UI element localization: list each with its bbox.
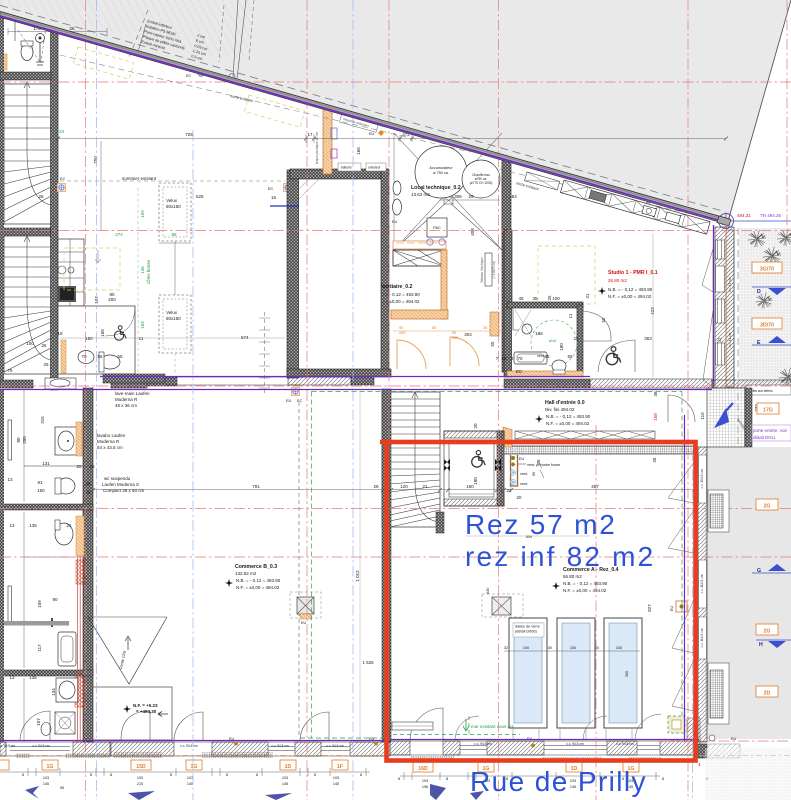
svg-text:30: 30 — [548, 646, 552, 650]
svg-text:Velux: Velux — [166, 198, 178, 203]
svg-text:117: 117 — [37, 644, 42, 652]
svg-text:ø140: ø140 — [549, 339, 556, 343]
svg-text:100: 100 — [552, 296, 560, 301]
svg-text:c.c. 94.5 cm: c.c. 94.5 cm — [616, 742, 634, 746]
svg-text:H: H — [759, 642, 763, 648]
svg-text:158: 158 — [653, 413, 658, 421]
svg-text:Tableau électrique: Tableau électrique — [480, 257, 484, 283]
svg-text:EC: EC — [297, 399, 303, 403]
svg-text:8: 8 — [170, 773, 172, 777]
svg-text:ø 750 ca.: ø 750 ca. — [433, 171, 449, 175]
svg-text:EU: EU — [392, 220, 398, 224]
svg-text:145: 145 — [43, 782, 49, 786]
svg-text:N.F. = ±0,00 = 494,02: N.F. = ±0,00 = 494,02 — [608, 294, 652, 299]
svg-text:25: 25 — [89, 464, 95, 469]
svg-text:81: 81 — [37, 480, 43, 485]
svg-text:300: 300 — [625, 671, 629, 677]
svg-text:625: 625 — [196, 194, 204, 199]
svg-text:N.B. = - 0,12 = 493.90: N.B. = - 0,12 = 493.90 — [563, 581, 608, 586]
svg-text:vent. primaire fosse: vent. primaire fosse — [527, 463, 560, 467]
svg-text:26: 26 — [373, 484, 379, 489]
svg-text:1 626: 1 626 — [362, 660, 374, 665]
svg-text:EU: EU — [519, 457, 525, 461]
svg-text:21: 21 — [66, 523, 72, 528]
svg-text:90: 90 — [532, 472, 536, 476]
svg-text:186: 186 — [535, 331, 543, 336]
svg-text:55: 55 — [432, 326, 436, 330]
svg-text:20: 20 — [76, 464, 82, 469]
svg-text:21: 21 — [585, 293, 590, 299]
svg-text:180: 180 — [559, 343, 564, 351]
svg-text:19: 19 — [57, 331, 63, 336]
svg-text:16D: 16D — [418, 766, 428, 772]
svg-text:96: 96 — [60, 786, 64, 790]
svg-text:8: 8 — [314, 773, 316, 777]
svg-text:c.c. 94.5 cm: c.c. 94.5 cm — [0, 744, 16, 748]
svg-text:13: 13 — [7, 477, 13, 482]
svg-text:EC: EC — [268, 187, 274, 191]
svg-text:25: 25 — [43, 362, 49, 367]
svg-text:196: 196 — [422, 785, 428, 789]
svg-text:c.c. 154.5 cm: c.c. 154.5 cm — [700, 469, 704, 488]
svg-text:35: 35 — [532, 296, 538, 301]
svg-text:Local technique_0.2: Local technique_0.2 — [411, 185, 461, 191]
svg-text:Velux: Velux — [166, 310, 178, 315]
svg-text:32: 32 — [504, 646, 508, 650]
svg-text:145: 145 — [282, 782, 288, 786]
svg-text:408: 408 — [470, 228, 475, 236]
svg-text:1 012: 1 012 — [355, 570, 360, 582]
svg-text:11: 11 — [139, 336, 144, 341]
svg-text:100: 100 — [570, 646, 576, 650]
svg-text:168: 168 — [100, 329, 105, 337]
svg-text:N.B. = - 0,12 = 493.90: N.B. = - 0,12 = 493.90 — [546, 414, 591, 419]
svg-text:134: 134 — [51, 688, 56, 696]
svg-text:Vestiaire_0.2: Vestiaire_0.2 — [381, 284, 413, 290]
svg-text:200: 200 — [108, 297, 116, 302]
svg-text:mur existant sous-sol: mur existant sous-sol — [471, 724, 514, 729]
svg-text:107: 107 — [36, 718, 41, 726]
svg-text:423: 423 — [650, 307, 655, 315]
svg-text:8: 8 — [398, 777, 400, 781]
svg-text:487: 487 — [591, 484, 599, 489]
svg-text:80x150: 80x150 — [166, 204, 181, 209]
svg-text:EC: EC — [186, 74, 192, 78]
svg-text:20: 20 — [516, 495, 522, 500]
svg-text:lave-main Laufen: lave-main Laufen — [115, 391, 150, 396]
svg-text:EU: EU — [369, 132, 375, 136]
svg-text:100: 100 — [26, 341, 34, 346]
svg-text:c.c. 114.5 cm: c.c. 114.5 cm — [700, 574, 704, 593]
svg-text:630: 630 — [486, 588, 490, 594]
svg-text:N.B. = - 0.12 = 493.90: N.B. = - 0.12 = 493.90 — [236, 578, 281, 583]
svg-text:80: 80 — [16, 437, 21, 443]
svg-text:200: 200 — [22, 436, 27, 444]
svg-text:132.52 m2: 132.52 m2 — [235, 571, 257, 576]
svg-text:725: 725 — [185, 132, 193, 137]
svg-text:21: 21 — [422, 484, 428, 489]
svg-text:13: 13 — [9, 523, 15, 528]
svg-text:70: 70 — [517, 356, 523, 361]
svg-text:. = ±0,00 = 494.02: . = ±0,00 = 494.02 — [383, 299, 420, 304]
svg-text:25: 25 — [468, 194, 474, 199]
svg-text:363: 363 — [644, 336, 652, 341]
svg-text:131: 131 — [42, 461, 50, 466]
svg-text:brique phonique 15 cm: brique phonique 15 cm — [315, 131, 319, 164]
svg-text:(ø775 CH 1926): (ø775 CH 1926) — [470, 181, 493, 185]
svg-text:54 x 43.5 cm: 54 x 43.5 cm — [97, 445, 123, 450]
svg-text:Rue de Prilly: Rue de Prilly — [470, 766, 647, 797]
svg-text:103: 103 — [43, 776, 49, 780]
svg-text:c.c. 94.5 cm: c.c. 94.5 cm — [32, 744, 50, 748]
svg-text:EU: EU — [670, 605, 674, 611]
svg-text:c.c. 114.5 cm: c.c. 114.5 cm — [700, 628, 704, 647]
svg-text:180: 180 — [473, 477, 478, 485]
svg-text:103: 103 — [187, 776, 193, 780]
svg-text:N.F. = +0.23: N.F. = +0.23 — [133, 703, 158, 708]
svg-text:(+1.80/7cm): (+1.80/7cm) — [492, 261, 496, 278]
svg-text:90: 90 — [399, 326, 403, 330]
svg-text:8: 8 — [446, 777, 448, 781]
svg-text:55: 55 — [490, 341, 495, 347]
svg-text:70: 70 — [81, 354, 87, 359]
svg-text:56.80 m2: 56.80 m2 — [563, 574, 582, 579]
svg-text:1G: 1G — [191, 764, 198, 770]
svg-text:Studio 1 - PMR I_0.1: Studio 1 - PMR I_0.1 — [608, 270, 658, 276]
svg-text:porte entrée, voir: porte entrée, voir — [753, 428, 788, 433]
svg-text:8: 8 — [360, 773, 362, 777]
svg-text:109: 109 — [37, 600, 42, 608]
svg-text:103: 103 — [137, 776, 143, 780]
svg-text:N.F. = ±0,00 = 494.02: N.F. = ±0,00 = 494.02 — [563, 588, 607, 593]
svg-text:Moderna R: Moderna R — [115, 397, 138, 402]
svg-text:120: 120 — [400, 484, 408, 489]
svg-text:20: 20 — [473, 423, 478, 429]
svg-text:Rez 57 m2: Rez 57 m2 — [465, 509, 617, 540]
svg-text:3D/70: 3D/70 — [760, 323, 774, 329]
svg-text:674: 674 — [241, 335, 249, 340]
svg-text:batterie: batterie — [341, 166, 352, 170]
svg-text:c.c. 94.5 cm: c.c. 94.5 cm — [180, 744, 198, 748]
svg-text:103: 103 — [333, 776, 339, 780]
svg-text:. = - 0.12 = 493.90: . = - 0.12 = 493.90 — [383, 292, 420, 297]
svg-text:30: 30 — [595, 646, 599, 650]
svg-text:vent.: vent. — [520, 472, 528, 476]
svg-text:26: 26 — [536, 459, 541, 465]
svg-text:13.63 m2: 13.63 m2 — [411, 192, 430, 197]
svg-text:100: 100 — [616, 646, 622, 650]
svg-text:791: 791 — [252, 484, 260, 489]
svg-text:210: 210 — [137, 782, 143, 786]
svg-text:8: 8 — [110, 773, 112, 777]
svg-text:détail D011: détail D011 — [753, 435, 776, 440]
svg-text:dalles de verre: dalles de verre — [515, 625, 540, 629]
svg-text:N.F. = ±0,00 = 494.02: N.F. = ±0,00 = 494.02 — [546, 421, 590, 426]
svg-text:26: 26 — [38, 194, 44, 199]
svg-text:EU: EU — [301, 621, 307, 625]
svg-text:wc suspendu: wc suspendu — [104, 476, 131, 481]
svg-text:26: 26 — [41, 343, 47, 348]
svg-text:45: 45 — [518, 296, 524, 301]
svg-text:sommier existant: sommier existant — [122, 176, 157, 181]
svg-text:145: 145 — [187, 782, 193, 786]
svg-text:146: 146 — [140, 266, 145, 274]
svg-text:17G: 17G — [763, 408, 773, 414]
svg-text:17: 17 — [307, 132, 313, 137]
svg-text:rez inf 82 m2: rez inf 82 m2 — [465, 541, 655, 572]
svg-text:(détail D006): (détail D006) — [515, 630, 537, 634]
svg-text:26: 26 — [652, 457, 657, 463]
svg-text:274: 274 — [115, 232, 123, 237]
svg-text:1D: 1D — [285, 764, 292, 770]
svg-text:103: 103 — [422, 779, 428, 783]
svg-text:E: E — [757, 340, 761, 346]
svg-text:90: 90 — [452, 331, 456, 335]
svg-text:Compact 36 x 50 cm: Compact 36 x 50 cm — [103, 488, 145, 493]
svg-text:145: 145 — [333, 782, 339, 786]
svg-text:55: 55 — [117, 354, 123, 359]
svg-text:Niv. fini 494.02: Niv. fini 494.02 — [545, 407, 575, 412]
svg-text:côtes brutes: côtes brutes — [146, 259, 151, 284]
svg-text:TN 494.26: TN 494.26 — [760, 213, 782, 218]
svg-text:13: 13 — [9, 675, 15, 680]
svg-text:onduleur: onduleur — [368, 166, 381, 170]
svg-text:2G: 2G — [764, 629, 771, 635]
svg-text:200: 200 — [399, 331, 405, 335]
svg-text:c.c. 94.5 cm: c.c. 94.5 cm — [566, 742, 584, 746]
svg-text:103: 103 — [282, 776, 288, 780]
svg-text:26.80 m2: 26.80 m2 — [608, 278, 627, 283]
svg-text:2D: 2D — [764, 691, 771, 697]
svg-text:28: 28 — [483, 326, 487, 330]
svg-text:8: 8 — [90, 773, 92, 777]
svg-text:55: 55 — [97, 354, 103, 359]
svg-text:135: 135 — [29, 523, 37, 528]
svg-text:200: 200 — [452, 336, 458, 340]
svg-text:vent.: vent. — [520, 482, 528, 486]
svg-text:EU: EU — [286, 399, 292, 403]
svg-text:Laufen Moderna S: Laufen Moderna S — [102, 482, 139, 487]
svg-text:159: 159 — [140, 321, 145, 329]
svg-text:90: 90 — [52, 597, 58, 602]
svg-text:135: 135 — [29, 675, 37, 680]
svg-text:24: 24 — [59, 129, 65, 134]
svg-text:8: 8 — [226, 773, 228, 777]
svg-text:11: 11 — [568, 313, 573, 318]
svg-text:c.c. 41 cm: c.c. 41 cm — [728, 277, 732, 292]
svg-text:EC: EC — [60, 177, 66, 181]
svg-text:c.c. 94.5 cm: c.c. 94.5 cm — [271, 744, 289, 748]
svg-text:15: 15 — [501, 356, 507, 361]
svg-text:26: 26 — [85, 490, 91, 495]
svg-text:150: 150 — [37, 488, 45, 493]
svg-text:btes aux lettres: btes aux lettres — [751, 389, 773, 393]
svg-text:N.F. = ±0,00 = 494.02: N.F. = ±0,00 = 494.02 — [236, 585, 280, 590]
svg-text:c.c. 41 cm: c.c. 41 cm — [728, 332, 732, 347]
svg-text:750: 750 — [93, 156, 98, 164]
svg-text:16: 16 — [271, 195, 277, 200]
svg-text:EC: EC — [516, 369, 523, 374]
svg-text:15D: 15D — [136, 764, 146, 770]
svg-text:Hall d'entrée 0.0: Hall d'entrée 0.0 — [545, 400, 585, 406]
svg-text:lavabo Laufen: lavabo Laufen — [97, 433, 126, 438]
svg-text:26: 26 — [85, 481, 91, 486]
svg-text:G: G — [757, 568, 761, 574]
svg-text:N.B. = - 0,12 = 493.90: N.B. = - 0,12 = 493.90 — [608, 287, 653, 292]
svg-text:Moderna R: Moderna R — [97, 439, 120, 444]
svg-text:2G: 2G — [764, 504, 771, 510]
svg-text:304: 304 — [464, 332, 472, 337]
svg-text:166: 166 — [356, 147, 361, 155]
svg-text:159: 159 — [140, 210, 145, 218]
svg-text:Commerce B_0.3: Commerce B_0.3 — [235, 564, 277, 570]
svg-text:80x150: 80x150 — [166, 316, 181, 321]
svg-text:315: 315 — [40, 416, 45, 424]
svg-text:100: 100 — [523, 646, 529, 650]
svg-text:494,31: 494,31 — [737, 213, 751, 218]
svg-text:8: 8 — [662, 777, 664, 781]
svg-text:26: 26 — [69, 26, 75, 31]
svg-text:306: 306 — [454, 194, 462, 199]
svg-text:55: 55 — [567, 354, 573, 359]
svg-text:PAC: PAC — [433, 226, 441, 230]
svg-text:827: 827 — [647, 604, 652, 612]
svg-text:D: D — [757, 289, 761, 295]
svg-text:88: 88 — [171, 232, 177, 237]
svg-text:8: 8 — [256, 773, 258, 777]
svg-text:c.c. 94.5 cm: c.c. 94.5 cm — [326, 744, 344, 748]
svg-text:1G: 1G — [47, 764, 54, 770]
svg-text:EU: EU — [731, 737, 737, 741]
svg-text:75: 75 — [7, 368, 13, 373]
svg-text:1F: 1F — [337, 764, 343, 770]
svg-text:110: 110 — [700, 412, 705, 420]
svg-text:= +494,30: = +494,30 — [136, 709, 157, 714]
svg-text:180: 180 — [85, 336, 93, 341]
svg-text:11: 11 — [574, 336, 579, 341]
svg-text:8: 8 — [22, 773, 24, 777]
svg-text:55: 55 — [544, 354, 550, 359]
svg-text:48 x 36 cm: 48 x 36 cm — [115, 403, 137, 408]
svg-text:c.c. 94.5 cm: c.c. 94.5 cm — [474, 742, 492, 746]
svg-text:3G/70: 3G/70 — [760, 267, 774, 273]
svg-text:Accumulateur: Accumulateur — [429, 166, 453, 170]
